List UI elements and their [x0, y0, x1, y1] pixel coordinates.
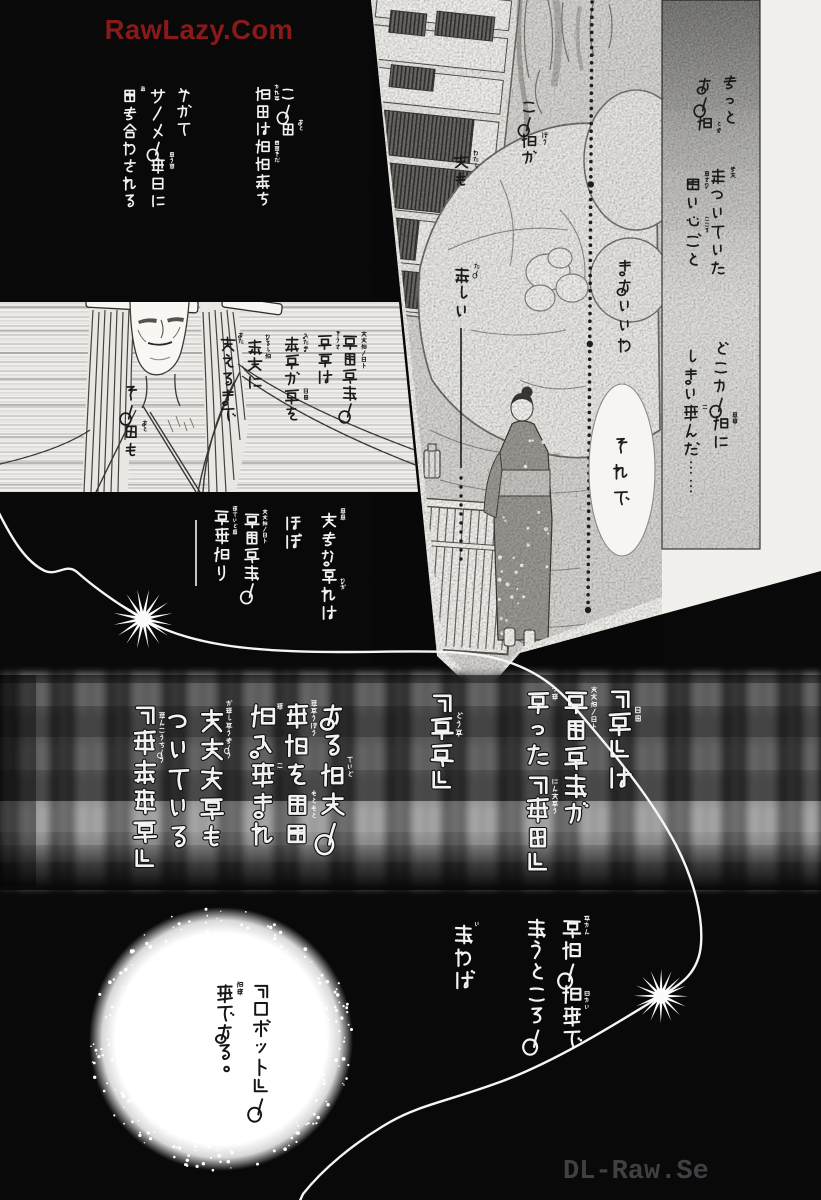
svg-text:RawLazy.Com: RawLazy.Com	[105, 14, 294, 45]
svg-text:DL-Raw.Se: DL-Raw.Se	[563, 1157, 709, 1187]
